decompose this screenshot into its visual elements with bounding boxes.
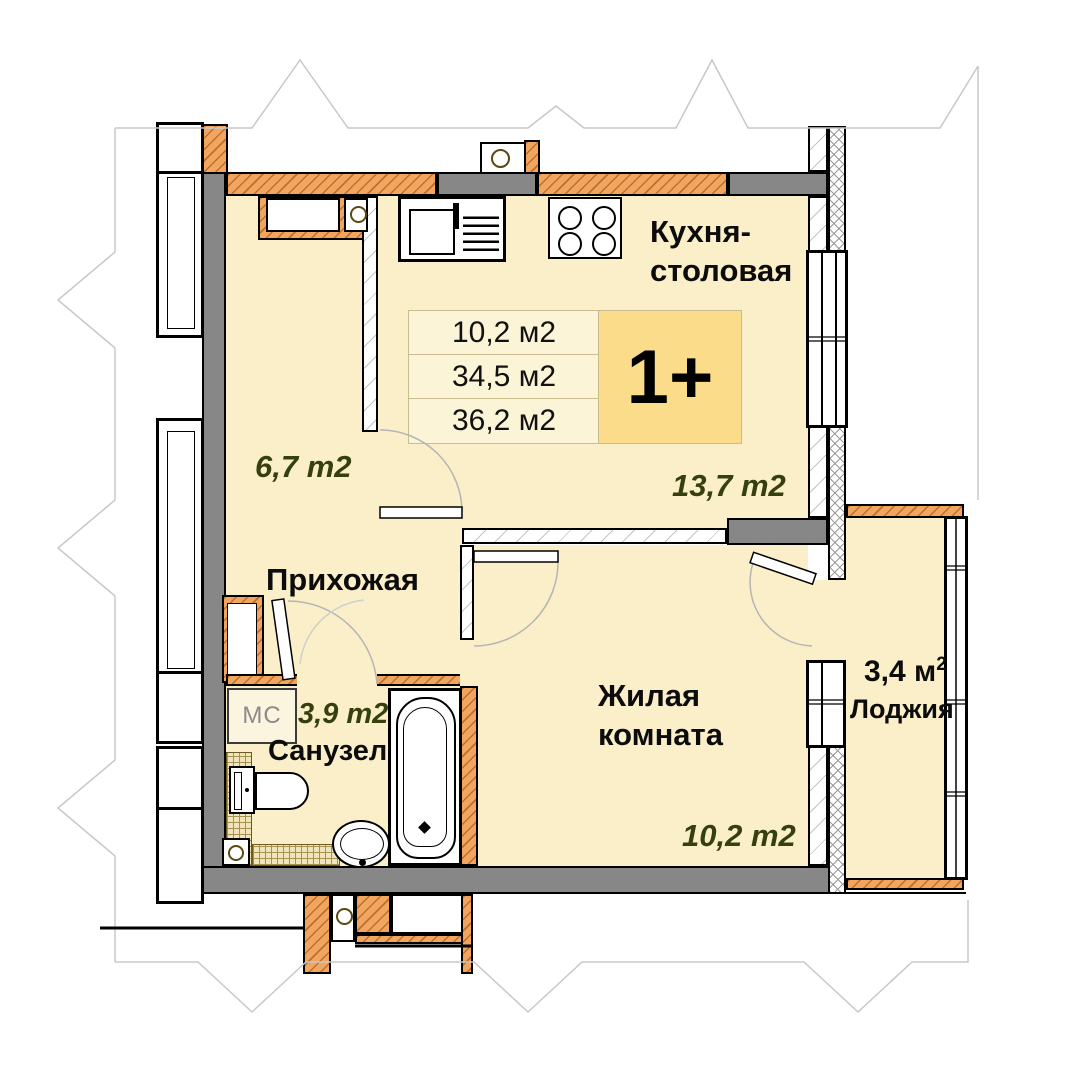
bathtub (388, 688, 462, 866)
stove (548, 197, 622, 259)
washing-machine-label: МС (242, 702, 281, 730)
top-wall-brick-left (226, 172, 437, 196)
hallway-label: Прихожая (266, 560, 419, 599)
drainboard-lines (463, 211, 499, 251)
kitchen-area-label: 13,7 m2 (672, 468, 786, 504)
living-door-opening (460, 640, 476, 686)
toilet-tank (229, 766, 255, 814)
faucet-icon (453, 203, 459, 229)
lower-structure-brick-bar (355, 934, 463, 944)
lower-structure-brick-b (355, 894, 391, 934)
washbasin (332, 820, 390, 868)
living-window (806, 660, 846, 748)
floor-plan: МС 10,2 м2 34,5 м2 36,2 м2 1+ Кухня- сто… (0, 0, 1080, 1080)
right-wall-inner-c (808, 746, 828, 866)
right-wall-inner-b (808, 426, 828, 518)
lower-structure-brick-c (461, 894, 473, 974)
right-wall-insulation-mid (828, 426, 846, 580)
kitchen-sink (398, 196, 506, 262)
top-vent-brick-strip (524, 140, 540, 174)
toilet-bowl (255, 772, 309, 810)
drain-icon (228, 845, 244, 861)
bottom-exterior-wall (190, 866, 830, 894)
kitchen-label: Кухня- столовая (650, 212, 792, 290)
area-table-row: 34,5 м2 (409, 355, 599, 399)
bathroom-label: Санузел (268, 732, 387, 771)
burner-icon (592, 206, 616, 230)
right-wall-insulation-top (828, 126, 846, 252)
burner-icon (558, 232, 582, 256)
kitchen-cabinet-niche (266, 198, 340, 232)
kitchen-living-concrete-segment (727, 518, 828, 545)
loggia-area-label: 3,4 м2 (864, 645, 947, 691)
area-table: 10,2 м2 34,5 м2 36,2 м2 (408, 310, 600, 444)
balcony-door-opening (808, 580, 846, 660)
kitchen-living-partition (462, 528, 727, 544)
living-room-label: Жилая комната (598, 676, 723, 754)
right-wall-inner-top (808, 126, 828, 172)
top-wall-concrete-right (728, 172, 828, 196)
hallway-living-partition (460, 545, 474, 640)
left-exterior-wall (202, 172, 226, 872)
lower-structure-box (391, 894, 463, 934)
stairwell-window-bottom (156, 746, 204, 904)
bathroom-door-opening (297, 674, 377, 686)
unit-type-badge: 1+ (598, 310, 742, 444)
bathroom-right-wall (460, 686, 478, 866)
area-table-row: 10,2 м2 (409, 311, 599, 355)
bathroom-area-label: 3,9 m2 (298, 698, 388, 731)
living-area-label: 10,2 m2 (682, 818, 796, 854)
kitchen-window (806, 250, 848, 428)
lower-vent-icon (336, 908, 353, 925)
burner-icon (558, 206, 582, 230)
right-wall-insulation-bottom (828, 746, 846, 894)
top-vent-icon (491, 149, 510, 168)
burner-icon (592, 232, 616, 256)
top-left-brick-column (202, 124, 228, 174)
top-wall-brick-right (537, 172, 728, 196)
lower-structure-brick-a (303, 894, 331, 974)
hallway-niche-inner (227, 603, 257, 675)
vent-duct-icon (350, 206, 367, 223)
stairwell-window-mid (156, 418, 204, 744)
loggia-label: Лоджия (850, 690, 954, 729)
structure-lines (100, 893, 966, 946)
bathroom-tile-bottom (252, 844, 340, 866)
right-wall-inner-a (808, 196, 828, 252)
area-table-row: 36,2 м2 (409, 399, 599, 443)
top-wall-concrete-segment (437, 172, 537, 196)
stairwell-window-top (156, 122, 204, 338)
hallway-area-label: 6,7 m2 (255, 449, 352, 485)
